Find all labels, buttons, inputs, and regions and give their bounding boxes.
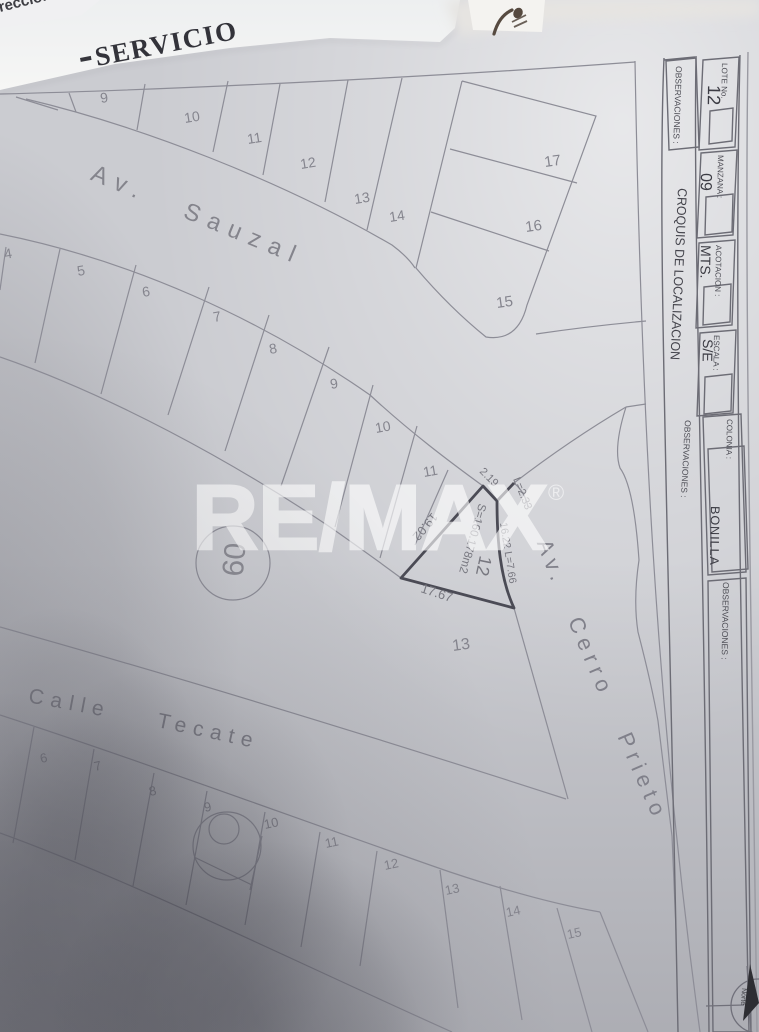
- svg-text:BONILLA: BONILLA: [707, 506, 722, 566]
- svg-text:12: 12: [704, 85, 724, 105]
- svg-text:S/E: S/E: [700, 339, 716, 362]
- svg-text:MTS.: MTS.: [697, 245, 714, 279]
- svg-text:MANZANA :: MANZANA :: [715, 155, 725, 198]
- svg-text:Norte: Norte: [739, 988, 747, 1006]
- svg-text:OBSERVACIONES :: OBSERVACIONES :: [720, 582, 731, 660]
- svg-text:09: 09: [697, 173, 714, 191]
- svg-text:COLONIA :: COLONIA :: [724, 419, 734, 459]
